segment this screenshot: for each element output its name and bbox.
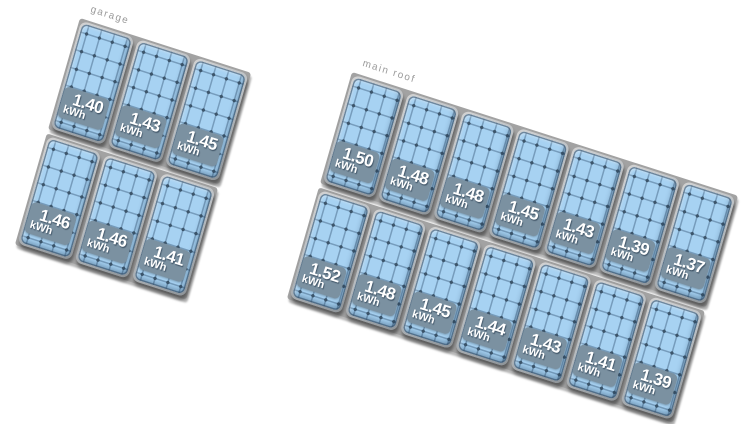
- roof-array-main-roof: main roof 1.50kWh1.48kWh1.48kWh1.45kWh1.…: [287, 72, 738, 423]
- solar-array-layout-canvas: garage 1.40kWh1.43kWh1.45kWh1.46kWh1.46k…: [0, 0, 750, 424]
- roof-array-garage: garage 1.40kWh1.43kWh1.45kWh1.46kWh1.46k…: [15, 18, 251, 300]
